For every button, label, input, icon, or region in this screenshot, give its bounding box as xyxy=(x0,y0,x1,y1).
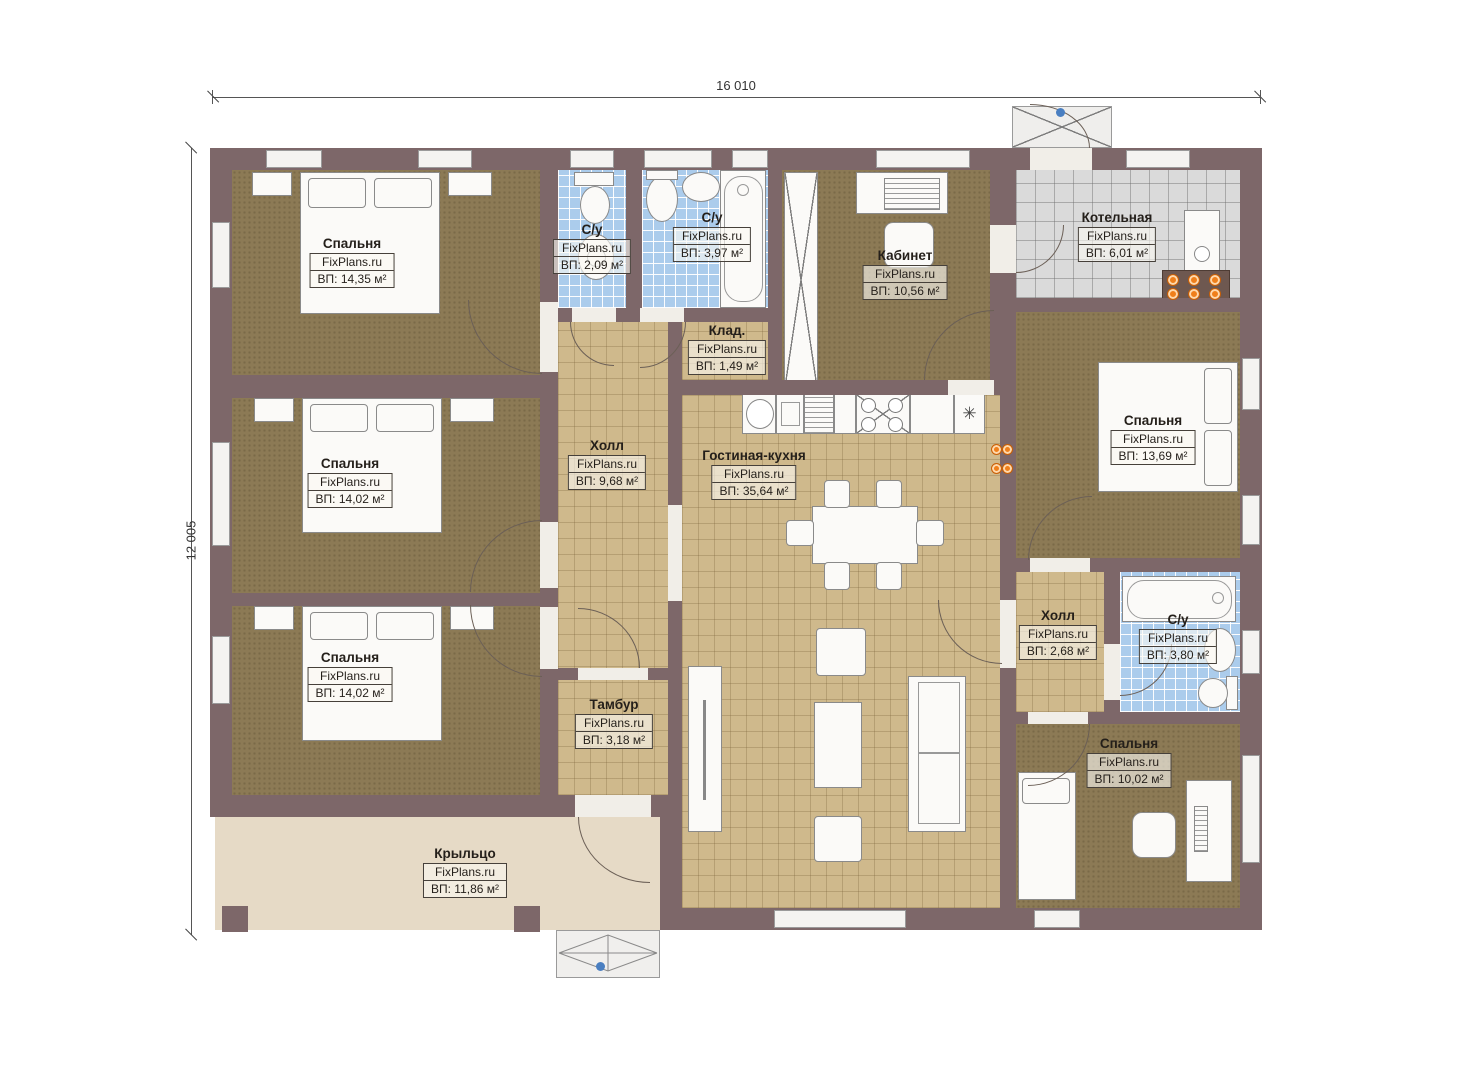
porch-column xyxy=(514,906,540,932)
window xyxy=(1242,755,1260,863)
coffee-table xyxy=(814,702,862,788)
socket-indicator xyxy=(991,444,1002,455)
cabinet-door-icon xyxy=(781,402,800,426)
pillow xyxy=(308,178,366,208)
door-opening xyxy=(540,302,558,372)
burner-icon xyxy=(888,398,903,413)
room-area: ВП: 3,97 м² xyxy=(674,245,750,261)
floor-plan: 16 010 12 005 xyxy=(0,0,1474,1080)
pillow xyxy=(376,404,434,432)
steps xyxy=(556,930,660,978)
room-area: ВП: 14,35 м² xyxy=(311,271,394,287)
room-name: Кабинет xyxy=(863,248,948,263)
room-label-hall-2: Холл FixPlans.ruВП: 2,68 м² xyxy=(1019,608,1097,660)
room-label-porch: Крыльцо FixPlans.ruВП: 11,86 м² xyxy=(423,846,507,898)
brand-label: FixPlans.ru xyxy=(1140,630,1216,647)
armchair xyxy=(814,816,862,862)
dimension-ext xyxy=(1260,90,1261,104)
boiler-light xyxy=(1167,288,1179,300)
brand-label: FixPlans.ru xyxy=(864,266,947,283)
window xyxy=(266,150,322,168)
pillow xyxy=(376,612,434,640)
tank-cap-icon xyxy=(1194,246,1210,262)
brand-label: FixPlans.ru xyxy=(1088,754,1171,771)
nightstand xyxy=(252,172,292,196)
room-area: ВП: 3,18 м² xyxy=(576,732,652,748)
room-area: ВП: 13,69 м² xyxy=(1112,448,1195,464)
room-label-bathroom-2: С/у FixPlans.ruВП: 3,97 м² xyxy=(673,210,751,262)
room-label-bedroom-5: Спальня FixPlans.ruВП: 10,02 м² xyxy=(1087,736,1172,788)
printer-icon xyxy=(884,178,940,210)
brand-label: FixPlans.ru xyxy=(309,474,392,491)
room-name: Спальня xyxy=(1087,736,1172,751)
door-opening xyxy=(1028,712,1088,724)
door-opening xyxy=(1000,600,1016,668)
door-opening xyxy=(668,505,682,601)
pillow xyxy=(310,404,368,432)
room-name: Крыльцо xyxy=(423,846,507,861)
burner-icon xyxy=(861,417,876,432)
nightstand xyxy=(254,606,294,630)
room-name: Тамбур xyxy=(575,697,653,712)
window xyxy=(1126,150,1190,168)
window xyxy=(644,150,712,168)
room-area: ВП: 35,64 м² xyxy=(713,483,796,499)
chair xyxy=(824,480,850,508)
boiler-light xyxy=(1188,274,1200,286)
room-name: Спальня xyxy=(1111,413,1196,428)
room-name: Котельная xyxy=(1078,210,1156,225)
sofa-cushion xyxy=(918,682,960,754)
chair xyxy=(916,520,944,546)
room-name: Холл xyxy=(1019,608,1097,623)
chair xyxy=(786,520,814,546)
tv-icon xyxy=(703,700,706,800)
dimension-top-label: 16 010 xyxy=(686,78,786,93)
room-area: ВП: 6,01 м² xyxy=(1079,245,1155,261)
dimension-line-top xyxy=(212,97,1260,98)
wardrobe xyxy=(784,172,818,388)
wall xyxy=(660,908,1240,930)
sink xyxy=(682,172,720,202)
room-name: Спальня xyxy=(308,456,393,471)
window xyxy=(418,150,472,168)
toilet xyxy=(580,186,610,224)
wall xyxy=(660,795,682,930)
room-area: ВП: 9,68 м² xyxy=(569,473,645,489)
brand-label: FixPlans.ru xyxy=(311,254,394,271)
room-area: ВП: 10,02 м² xyxy=(1088,771,1171,787)
window xyxy=(876,150,970,168)
room-area: ВП: 14,02 м² xyxy=(309,685,392,701)
room-area: ВП: 2,09 м² xyxy=(554,257,630,273)
room-area: ВП: 10,56 м² xyxy=(864,283,947,299)
kitchen-cabinet xyxy=(834,394,856,434)
sofa-cushion xyxy=(918,752,960,824)
door-opening xyxy=(640,308,684,322)
nightstand xyxy=(450,398,494,422)
wall xyxy=(1016,298,1240,312)
room-area: ВП: 3,80 м² xyxy=(1140,647,1216,663)
room-area: ВП: 14,02 м² xyxy=(309,491,392,507)
pillow xyxy=(1204,368,1232,424)
window xyxy=(212,636,230,704)
kitchen-drawers xyxy=(804,394,834,434)
room-area: ВП: 11,86 м² xyxy=(424,881,506,897)
room-name: С/у xyxy=(1139,612,1217,627)
computer-icon xyxy=(1194,806,1208,852)
brand-label: FixPlans.ru xyxy=(569,456,645,473)
window xyxy=(732,150,768,168)
door-opening xyxy=(575,795,651,817)
armchair xyxy=(816,628,866,676)
entry-marker xyxy=(596,962,605,971)
window xyxy=(1242,495,1260,545)
toilet-tank xyxy=(646,170,678,180)
chair xyxy=(824,562,850,590)
window xyxy=(1034,910,1080,928)
dimension-left-label: 12 005 xyxy=(184,481,199,601)
toilet-tank xyxy=(574,172,614,186)
room-label-bathroom-3: С/у FixPlans.ruВП: 3,80 м² xyxy=(1139,612,1217,664)
door-opening xyxy=(540,607,558,669)
brand-label: FixPlans.ru xyxy=(1112,431,1195,448)
entry-marker xyxy=(1056,108,1065,117)
brand-label: FixPlans.ru xyxy=(309,668,392,685)
brand-label: FixPlans.ru xyxy=(1079,228,1155,245)
window xyxy=(212,442,230,546)
nightstand xyxy=(254,398,294,422)
fridge-icon: ✳ xyxy=(954,394,985,434)
socket-indicator xyxy=(1002,463,1013,474)
socket-indicator xyxy=(991,463,1002,474)
wall xyxy=(232,375,540,398)
wall xyxy=(768,170,782,380)
brand-label: FixPlans.ru xyxy=(424,864,506,881)
door-opening xyxy=(540,522,558,588)
desk xyxy=(1186,780,1232,882)
nightstand xyxy=(448,172,492,196)
brand-label: FixPlans.ru xyxy=(576,715,652,732)
room-label-bathroom-1: С/у FixPlans.ruВП: 2,09 м² xyxy=(553,222,631,274)
door-opening xyxy=(1104,644,1120,700)
chair xyxy=(876,480,902,508)
door-opening xyxy=(990,225,1016,273)
drain-icon xyxy=(737,184,749,196)
window xyxy=(212,222,230,288)
room-name: Спальня xyxy=(308,650,393,665)
window xyxy=(774,910,906,928)
door-opening xyxy=(578,668,648,680)
burner-icon xyxy=(888,417,903,432)
wall xyxy=(990,170,1016,225)
porch-column xyxy=(222,906,248,932)
boiler-light xyxy=(1209,274,1221,286)
room-label-tambour: Тамбур FixPlans.ruВП: 3,18 м² xyxy=(575,697,653,749)
room-name: Гостиная-кухня xyxy=(702,448,805,463)
room-label-bedroom-2: Спальня FixPlans.ruВП: 14,02 м² xyxy=(308,456,393,508)
boiler-tank xyxy=(1184,210,1220,278)
pillow xyxy=(1204,430,1232,486)
room-label-bedroom-4: Спальня FixPlans.ruВП: 13,69 м² xyxy=(1111,413,1196,465)
pillow xyxy=(374,178,432,208)
toilet xyxy=(1198,678,1228,708)
room-area: ВП: 1,49 м² xyxy=(689,358,765,374)
chair xyxy=(876,562,902,590)
room-label-storage: Клад. FixPlans.ruВП: 1,49 м² xyxy=(688,323,766,375)
room-label-living: Гостиная-кухня FixPlans.ruВП: 35,64 м² xyxy=(702,448,805,500)
room-name: Холл xyxy=(568,438,646,453)
room-label-bedroom-1: Спальня FixPlans.ruВП: 14,35 м² xyxy=(310,236,395,288)
boiler-light xyxy=(1167,274,1179,286)
room-label-hall-main: Холл FixPlans.ruВП: 9,68 м² xyxy=(568,438,646,490)
room-label-boiler: Котельная FixPlans.ruВП: 6,01 м² xyxy=(1078,210,1156,262)
door-opening xyxy=(572,308,616,322)
room-name: С/у xyxy=(673,210,751,225)
room-label-cabinet: Кабинет FixPlans.ruВП: 10,56 м² xyxy=(863,248,948,300)
desk-chair xyxy=(1132,812,1176,858)
dining-table xyxy=(812,506,918,564)
window xyxy=(570,150,614,168)
brand-label: FixPlans.ru xyxy=(554,240,630,257)
socket-indicator xyxy=(1002,444,1013,455)
room-area: ВП: 2,68 м² xyxy=(1020,643,1096,659)
brand-label: FixPlans.ru xyxy=(713,466,796,483)
window xyxy=(1242,630,1260,674)
pillow xyxy=(310,612,368,640)
room-label-bedroom-3: Спальня FixPlans.ruВП: 14,02 м² xyxy=(308,650,393,702)
drain-icon xyxy=(1212,592,1224,604)
dimension-ext xyxy=(212,90,213,104)
brand-label: FixPlans.ru xyxy=(674,228,750,245)
boiler-light xyxy=(1188,288,1200,300)
brand-label: FixPlans.ru xyxy=(1020,626,1096,643)
window xyxy=(1242,358,1260,410)
room-name: Клад. xyxy=(688,323,766,338)
door-opening xyxy=(1030,148,1092,170)
burner-icon xyxy=(861,398,876,413)
boiler-light xyxy=(1209,288,1221,300)
room-name: С/у xyxy=(553,222,631,237)
kitchen-sink xyxy=(746,399,774,429)
door-opening xyxy=(948,380,994,395)
kitchen-cabinet xyxy=(910,394,954,434)
room-name: Спальня xyxy=(310,236,395,251)
door-opening xyxy=(1030,558,1090,572)
brand-label: FixPlans.ru xyxy=(689,341,765,358)
